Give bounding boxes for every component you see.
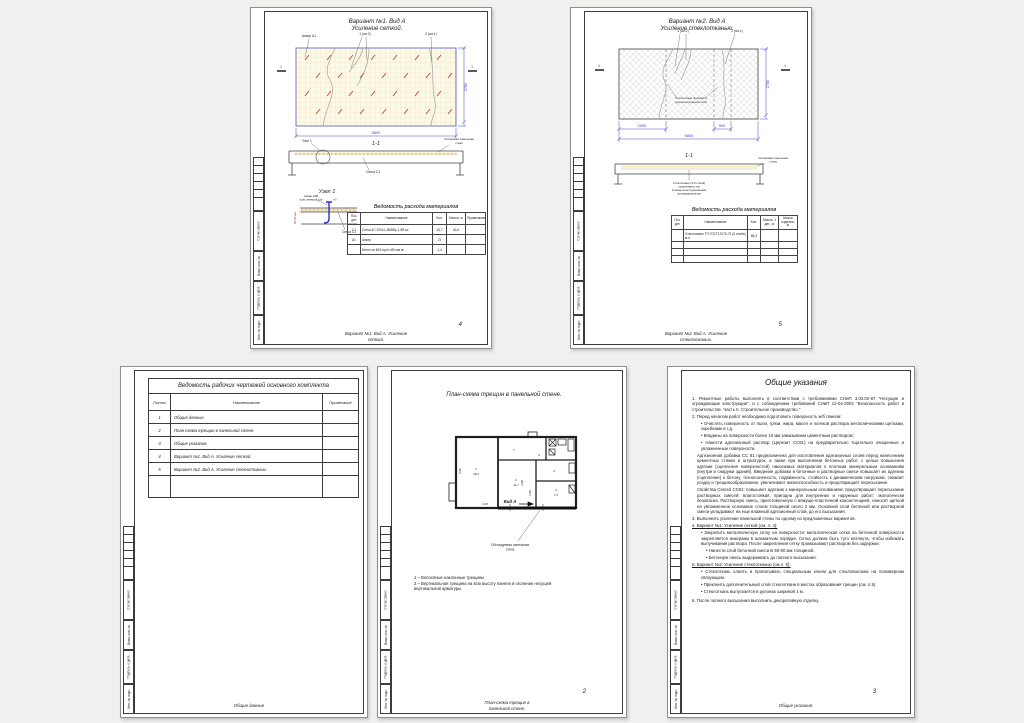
table-row [672,256,798,263]
section-mark-right: 1 [471,65,473,69]
sheet-footer: Общие указания. [681,703,911,708]
section-title: 1-1 [372,141,380,147]
note-item: • Впадины на поверхности более 10 мм зам… [692,433,904,439]
stamp-vzam-inv: Взам. инв. № [123,620,134,650]
stamp-podpis-data: Подпись и дата [670,650,681,684]
register-title: Ведомость рабочих чертежей основного ком… [149,379,359,394]
wall-callout-line2: стена [769,160,777,164]
page-number: 4 [459,322,462,328]
sheet-variant1-mesh[interactable]: Согласовано Взам. инв. № Подпись и дата … [250,7,492,349]
note-item: 1. Ремонтные работы выполнять в соответс… [692,396,904,413]
stamp-inv-podl: Инв. № подл. [670,684,681,714]
dim-5-80: 5,80 [458,468,462,474]
materials-table-variant1: Ведомость расхода материалов Поз. дет. Н… [347,204,485,255]
dim-3-80a: 3,80 [520,480,524,486]
crack2-callout: 2 (шт.1) [731,29,742,33]
plan-title: План-схема трещин в панельной стене. [446,391,561,398]
stamp-podpis-data: Подпись и дата [123,650,134,684]
table-row: Бетон кл.В15 при t=80 мм м² 1,4 [348,245,486,255]
section-mark-left: 1 [598,64,600,68]
dim-width: 5800 [372,130,381,135]
patch-label-line2: (дополнительный слой) [675,100,707,104]
sheet-title-line1: Вариант №2. Вид А [669,18,726,25]
room3-area: 7,2 [554,493,559,497]
node-dim-40: 40 [333,198,337,202]
note-item: • Приклеить дополнительный слой стеклотк… [692,582,904,588]
crack-legend: 1 – Волосяные наклонные трещины 2 – Верт… [414,575,599,592]
dim-height: 2780 [765,79,770,88]
crack2-callout: 2 (шт.1) [425,32,436,36]
note-item: • Очистить поверхность от пыли, грязи, ж… [692,421,904,432]
table-row: 1Общие данные [149,411,359,424]
view-a-label: Вид А [504,499,517,504]
inspected-wall-callout-line1: Обследуемая панельная [491,543,529,547]
table-row [672,242,798,249]
stamp-soglasovano: Согласовано [380,580,391,620]
sheet-crack-plan[interactable]: Согласовано Взам. инв. № Подпись и дата … [377,366,627,718]
stamp-podpis-data: Подпись и дата [573,281,584,315]
stamp-vzam-inv: Взам. инв. № [573,251,584,281]
table-row: А1Анкер 21 [348,235,486,245]
floor-plan-drawing: План-схема трещин в панельной стене. 1 [392,371,616,571]
approval-cells [380,526,391,580]
stamp-soglasovano: Согласовано [253,211,264,251]
table-row-empty [149,476,359,498]
note-item: • Бетонную смесь выдерживать до полного … [692,555,904,561]
section-note-line4: полимеррастворе [677,192,701,196]
table-row: 4Вариант №1. Вид А. Усиление сеткой. [149,450,359,463]
note-item: • Стеклоткань клеить и пропитывать специ… [692,569,904,580]
general-notes-body: 1. Ремонтные работы выполнять в соответс… [692,394,904,604]
col-name: Наименование [171,394,323,411]
stamp-inv-podl: Инв. № подл. [573,315,584,345]
crack1-callout: 1 (шт.2) [359,32,370,36]
sheet-title-line1: Вариант №1. Вид А [349,18,406,25]
anchor-callout: Анкер А1 [302,34,316,38]
note-item: • Нанести адгезионный раствор (Церезит С… [692,440,904,451]
variant2-drawing: Вариант №2. Вид А Усиление стеклотканью.… [585,12,809,208]
approval-cells [670,526,681,580]
inspected-wall-callout-line2: стена [506,548,515,552]
col-note: Примечание [323,394,359,411]
note-item: 2. Перед началом работ необходимо подгот… [692,414,904,420]
table-row: Стеклоткань ТП ГОСТ19170-73 (5 слоёв) м.… [672,230,798,242]
stamp-inv-podl: Инв. № подл. [253,315,264,345]
drawing-register-table: Ведомость рабочих чертежей основного ком… [148,378,359,498]
stamp-inv-podl: Инв. № подл. [123,684,134,714]
approval-cells [253,157,264,211]
section-title: 1-1 [685,153,693,159]
page-number: 3 [873,689,876,695]
dim-900: 900 [719,123,726,128]
note-item: 5. Вариант №2: Усиление стеклотканью (см… [692,562,904,568]
sheet-footer: Вариант №1. Вид А. Усиление сеткой. [264,331,488,342]
dim-2000: 2000 [638,123,647,128]
dim-height: 2780 [463,82,468,91]
note-item: • Закрепить металлическую сетку на повер… [692,530,904,547]
sheet-footer: Общие данные [134,703,364,708]
stamp-inv-podl: Инв. № подл. [380,684,391,714]
note-item: Свойства Ceresit CC81: повышает адгезию … [692,487,904,515]
stamp-podpis-data: Подпись и дата [380,650,391,684]
dim-3-80b: 3,80 [528,490,532,496]
mesh-label: Сетка С1 [366,170,380,174]
col-sheets: Листы [149,394,171,411]
page-number: 2 [583,689,586,695]
note-item: • Стеклоткань выпускается в рулонах шири… [692,589,904,595]
panel-elevation [619,49,758,119]
note-item: 6. После полного высыхания выполнить дек… [692,598,904,604]
materials-table-variant2: Ведомость расхода материалов Поз. дет. Н… [671,207,797,263]
sheet-drawing-register[interactable]: Согласовано Взам. инв. № Подпись и дата … [120,366,368,718]
section-mark-right: 1 [784,64,786,68]
table-row [672,249,798,256]
note-item: Адгезионная добавка СС 81 предназначена … [692,453,904,486]
room1-area: 18,2 [473,472,479,476]
approval-cells [573,157,584,211]
node-anchor-label2: (шаг анкеров 1м) [300,198,323,202]
sheet-general-notes[interactable]: Согласовано Взам. инв. № Подпись и дата … [667,366,915,718]
crack1-callout: 1 (шт.2) [677,29,688,33]
materials-table-title: Ведомость расхода материалов [347,204,485,210]
stamp-soglasovano: Согласовано [670,580,681,620]
note-item: 4. Вариант №1: Усиление сеткой (см. л. 4… [692,523,904,529]
wall-callout-line2: стена [455,141,463,145]
note-item: • Нанести слой бетонной смеси В 50-80 мм… [692,548,904,554]
table-row: С1Сетка 4С 200х1,4В/5Вр-1-5В м² 15,740,6 [348,225,486,235]
sheet-title-line2: Усиление стеклотканью. [659,26,733,32]
node-dim-thickness: 50-80 мм [293,212,297,224]
sheet-variant2-fiberglass[interactable]: Согласовано Взам. инв. № Подпись и дата … [570,7,812,349]
sheet-title-line2: Усиление сеткой. [351,25,403,32]
stamp-vzam-inv: Взам. инв. № [380,620,391,650]
node-callout: Узел 1 [302,139,312,143]
dim-3-15: 3,15 [482,502,488,506]
stamp-podpis-data: Подпись и дата [253,281,264,315]
stamp-vzam-inv: Взам. инв. № [253,251,264,281]
sheet-footer: План-схема трещин в панельной стене. [391,700,623,711]
section-mark-left: 1 [280,65,282,69]
approval-cells [123,526,134,580]
materials-table-title: Ведомость расхода материалов [671,207,797,213]
general-notes-title: Общие указания [681,378,911,387]
stamp-vzam-inv: Взам. инв. № [670,620,681,650]
room2-area: 11,7 [513,483,519,487]
note-item: 3. Выполнить усиление панельной стены по… [692,516,904,522]
stamp-soglasovano: Согласовано [123,580,134,620]
table-row: 2План-схема трещин в панельной стене. [149,424,359,437]
table-row: 5Вариант №2. Вид А. Усиление стеклоткань… [149,463,359,476]
sheet-footer: Вариант №2. Вид А. Усиление стеклотканью… [584,331,808,342]
node-detail-title: Узел 1 [318,189,336,195]
stamp-soglasovano: Согласовано [573,211,584,251]
dim-width: 5800 [685,133,694,138]
table-row: 3Общие указания. [149,437,359,450]
page-number: 5 [779,322,782,328]
